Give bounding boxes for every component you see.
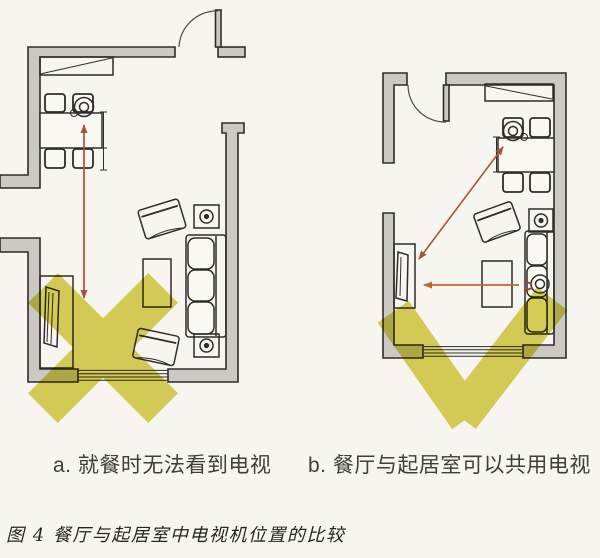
sofa-a	[186, 235, 226, 337]
dining-chair	[503, 173, 523, 192]
dining-chair	[530, 173, 550, 192]
side-table-lamp-b	[529, 209, 553, 232]
dining-chair	[45, 94, 65, 112]
sideboard-a	[40, 57, 113, 75]
floor-plan-a	[0, 10, 245, 423]
caption-plan-b: b. 餐厅与起居室可以共用电视	[308, 449, 591, 479]
sofa-cushion	[527, 234, 547, 265]
coffee-table-b	[482, 261, 512, 307]
sightline-arrow-b-dining	[419, 147, 503, 259]
door-a	[179, 10, 221, 47]
dining-table-a	[40, 94, 107, 170]
sofa-cushion	[188, 302, 214, 334]
sofa-cushion	[188, 238, 214, 269]
dining-chair	[73, 149, 93, 168]
figure-page: a. 就餐时无法看到电视 b. 餐厅与起居室可以共用电视 图 4 餐厅与起居室中…	[0, 0, 600, 558]
x-mark-icon	[28, 273, 178, 423]
figure-caption: 图 4 餐厅与起居室中电视机位置的比较	[6, 521, 345, 547]
side-table-lamp-a1	[194, 205, 219, 228]
dining-table-b	[493, 118, 554, 192]
door-swing-arc	[408, 85, 446, 122]
armchair-a1	[138, 199, 187, 240]
armchair-b1	[473, 201, 521, 243]
floor-plan-b	[378, 73, 568, 429]
sideboard-b	[485, 84, 553, 101]
floor-plan-diagram	[0, 0, 600, 505]
dining-chair	[45, 149, 65, 168]
tv-icon	[396, 252, 408, 301]
tv-cabinet-b	[394, 244, 415, 308]
door-b	[408, 85, 449, 122]
sofa-cushion	[188, 270, 214, 301]
caption-plan-a: a. 就餐时无法看到电视	[53, 449, 271, 479]
dining-chair	[530, 118, 550, 137]
door-swing-arc	[179, 11, 218, 47]
